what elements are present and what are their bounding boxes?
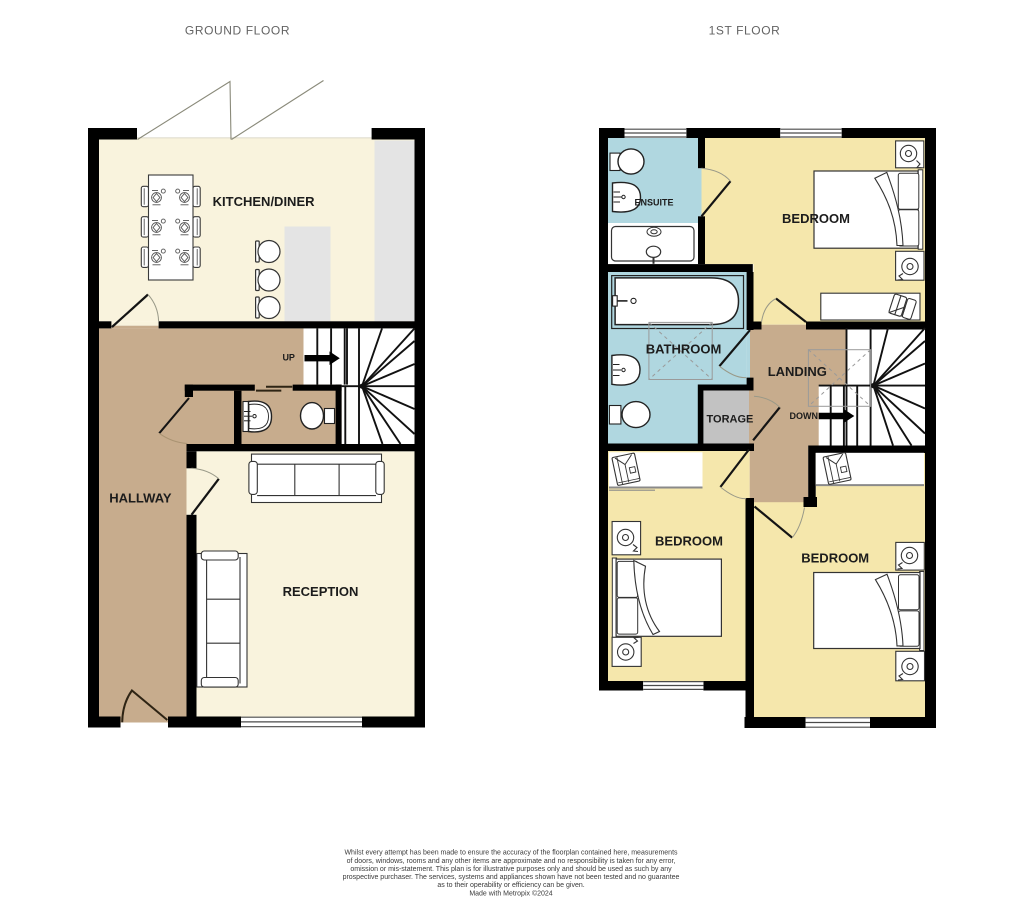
svg-text:BEDROOM: BEDROOM xyxy=(801,551,869,566)
svg-text:TORAGE: TORAGE xyxy=(707,414,754,426)
svg-text:KITCHEN/DINER: KITCHEN/DINER xyxy=(213,194,315,209)
svg-text:Whilst every attempt has been: Whilst every attempt has been made to en… xyxy=(344,850,678,857)
svg-text:prospective purchaser. The ser: prospective purchaser. The services, sys… xyxy=(343,874,680,881)
svg-text:Made with Metropix ©2024: Made with Metropix ©2024 xyxy=(469,889,552,897)
svg-text:BEDROOM: BEDROOM xyxy=(655,534,723,549)
svg-text:1ST FLOOR: 1ST FLOOR xyxy=(709,24,781,38)
svg-text:as to their operability or eff: as to their operability or efficiency ca… xyxy=(437,882,584,889)
svg-text:omission or mis-statement. Thi: omission or mis-statement. This plan is … xyxy=(350,866,672,873)
svg-text:ENSUITE: ENSUITE xyxy=(634,197,673,207)
svg-text:HALLWAY: HALLWAY xyxy=(109,491,172,506)
svg-text:BATHROOM: BATHROOM xyxy=(646,342,722,357)
svg-text:BEDROOM: BEDROOM xyxy=(782,211,850,226)
svg-text:UP: UP xyxy=(282,352,295,362)
svg-text:RECEPTION: RECEPTION xyxy=(283,584,359,599)
svg-text:DOWN: DOWN xyxy=(790,411,819,421)
svg-text:GROUND FLOOR: GROUND FLOOR xyxy=(185,24,290,38)
svg-text:of doors, windows, rooms and a: of doors, windows, rooms and any other i… xyxy=(347,858,676,865)
svg-text:LANDING: LANDING xyxy=(768,364,827,379)
